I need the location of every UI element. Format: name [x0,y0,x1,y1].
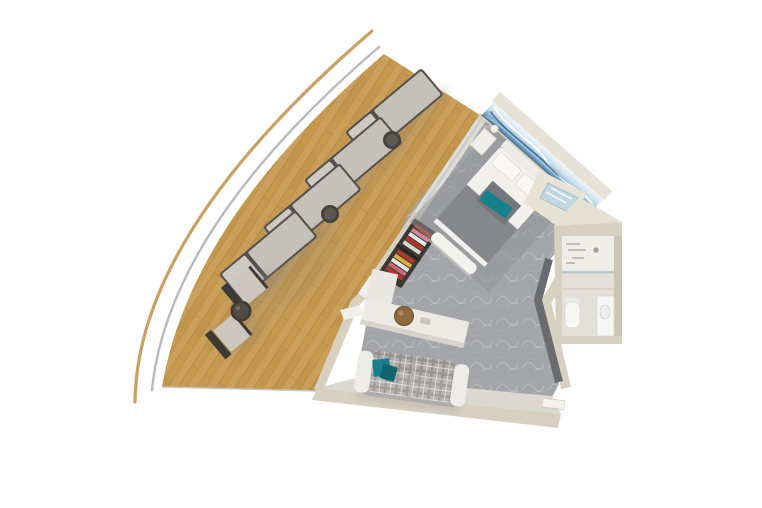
bathroom-divider [562,288,614,290]
round-stool [395,307,414,326]
side-table-top [324,208,336,220]
floorplan-render [0,0,762,508]
side-table-top [386,134,398,146]
shower-glass [562,271,614,274]
toilet [565,302,580,328]
floorplan-image [0,0,762,508]
table-highlight [236,306,240,310]
stool-highlight [399,311,404,316]
sink-basin [600,305,610,319]
bathroom-inner-wall [614,236,622,336]
shower-drain [593,247,598,252]
shower-tray [562,236,614,272]
cocktail-table-top [233,303,249,319]
